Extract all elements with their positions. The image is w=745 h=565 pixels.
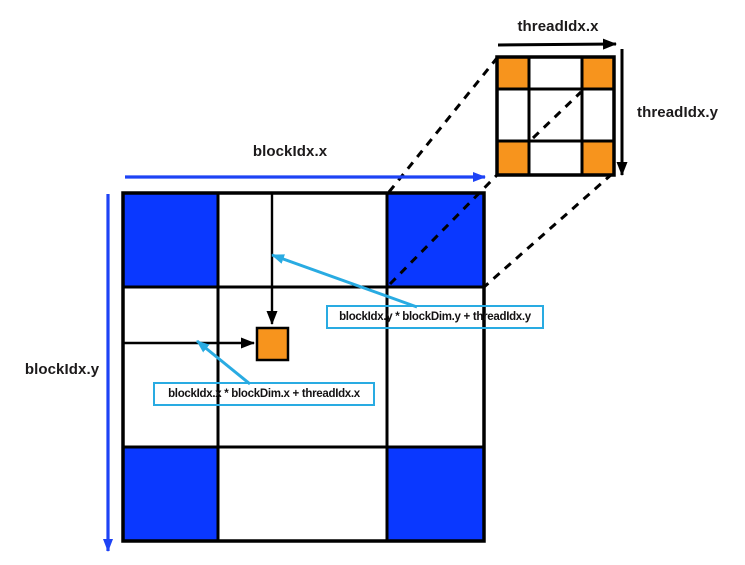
- threadidx-x-arrow: [498, 44, 616, 45]
- cuda-indexing-diagram: threadIdx.x threadIdx.y blockIdx.x block…: [0, 0, 745, 565]
- thread-cell: [582, 89, 614, 141]
- blockidx-y-label: blockIdx.y: [18, 361, 106, 378]
- block-cell: [123, 287, 218, 447]
- thread-cell: [582, 57, 614, 89]
- block-cell: [387, 447, 484, 541]
- threadidx-y-label: threadIdx.y: [637, 104, 718, 121]
- block-grid: [123, 193, 484, 541]
- highlighted-thread-cell: [257, 328, 288, 360]
- block-cell: [218, 447, 387, 541]
- threadidx-x-label: threadIdx.x: [478, 18, 638, 35]
- block-cell: [218, 193, 387, 287]
- blockidx-x-label: blockIdx.x: [210, 143, 370, 160]
- x-index-formula-box: blockIdx.x * blockDim.x + threadIdx.x: [153, 382, 375, 406]
- y-index-formula-box: blockIdx.y * blockDim.y + threadIdx.y: [326, 305, 544, 329]
- thread-cell: [497, 57, 529, 89]
- block-cell: [123, 193, 218, 287]
- thread-cell: [497, 89, 529, 141]
- block-cell: [123, 447, 218, 541]
- thread-cell: [497, 141, 529, 175]
- diagram-canvas: [0, 0, 745, 565]
- thread-cell: [529, 141, 582, 175]
- thread-cell: [582, 141, 614, 175]
- thread-cell: [529, 57, 582, 89]
- dashed-line-bottomright: [484, 174, 612, 287]
- dashed-line-topleft: [389, 58, 497, 192]
